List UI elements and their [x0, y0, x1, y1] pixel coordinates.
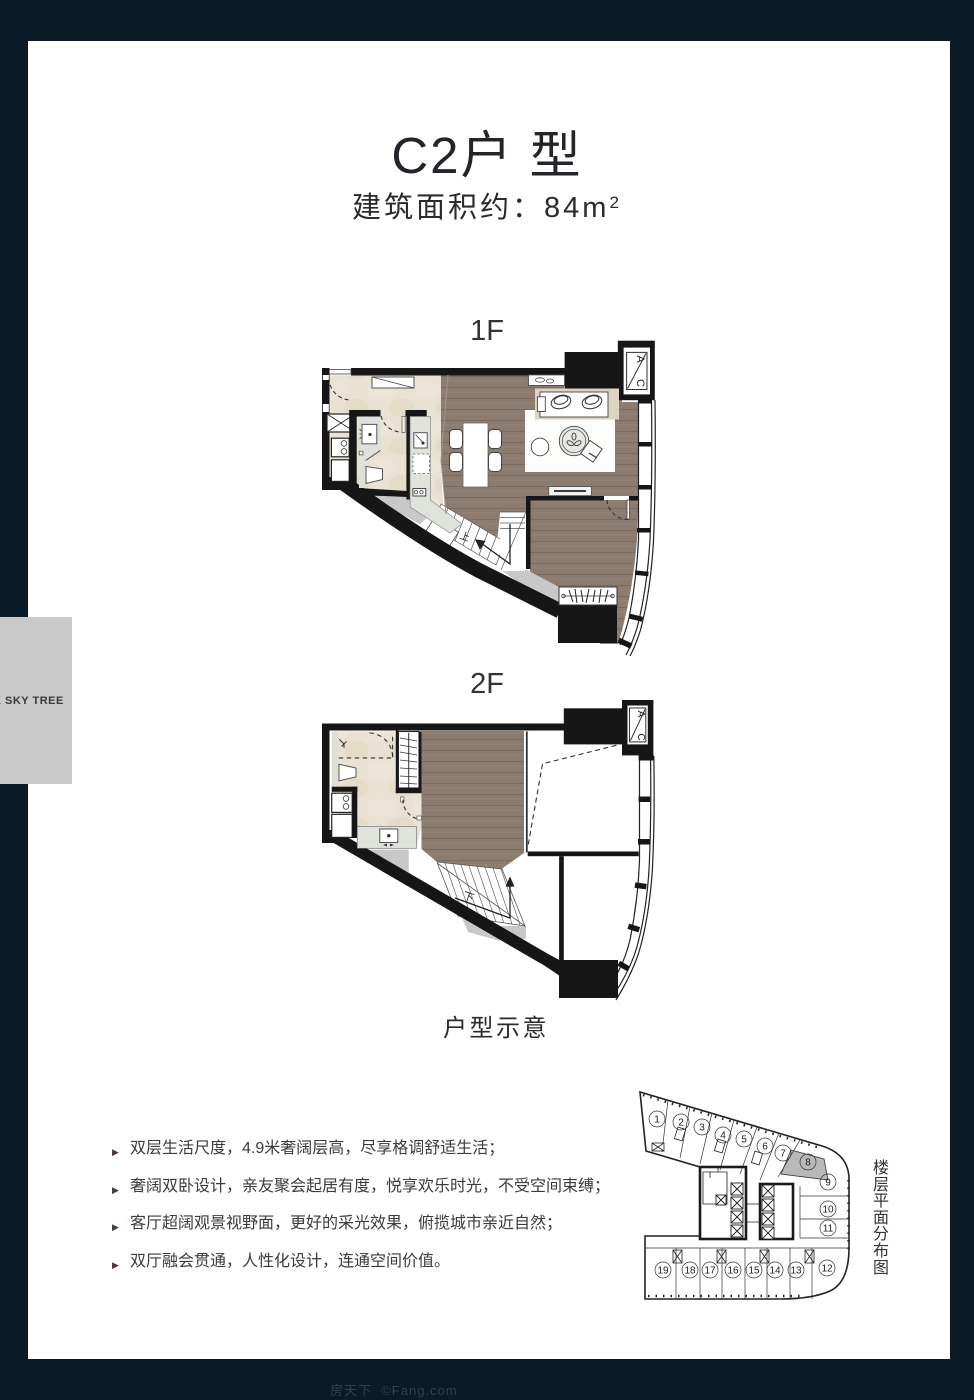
svg-text:18: 18 [684, 1266, 696, 1277]
svg-text:9: 9 [825, 1178, 831, 1189]
svg-text:4: 4 [720, 1131, 726, 1142]
svg-text:2: 2 [678, 1118, 684, 1129]
svg-text:C: C [634, 379, 646, 387]
svg-text:3: 3 [699, 1123, 705, 1134]
svg-text:11: 11 [823, 1224, 834, 1235]
svg-text:C: C [635, 733, 646, 740]
svg-text:17: 17 [704, 1266, 716, 1277]
svg-text:14: 14 [769, 1266, 781, 1277]
svg-text:13: 13 [790, 1266, 802, 1277]
svg-text:A: A [634, 355, 646, 363]
svg-text:5: 5 [741, 1135, 747, 1146]
svg-text:15: 15 [748, 1266, 760, 1277]
svg-text:16: 16 [727, 1266, 739, 1277]
svg-text:19: 19 [657, 1266, 669, 1277]
svg-text:8: 8 [805, 1158, 811, 1169]
svg-text:10: 10 [822, 1205, 834, 1216]
svg-text:6: 6 [762, 1142, 768, 1153]
svg-text:12: 12 [821, 1264, 833, 1275]
svg-text:7: 7 [780, 1149, 786, 1160]
svg-text:1: 1 [654, 1115, 660, 1126]
svg-text:A: A [635, 711, 646, 718]
